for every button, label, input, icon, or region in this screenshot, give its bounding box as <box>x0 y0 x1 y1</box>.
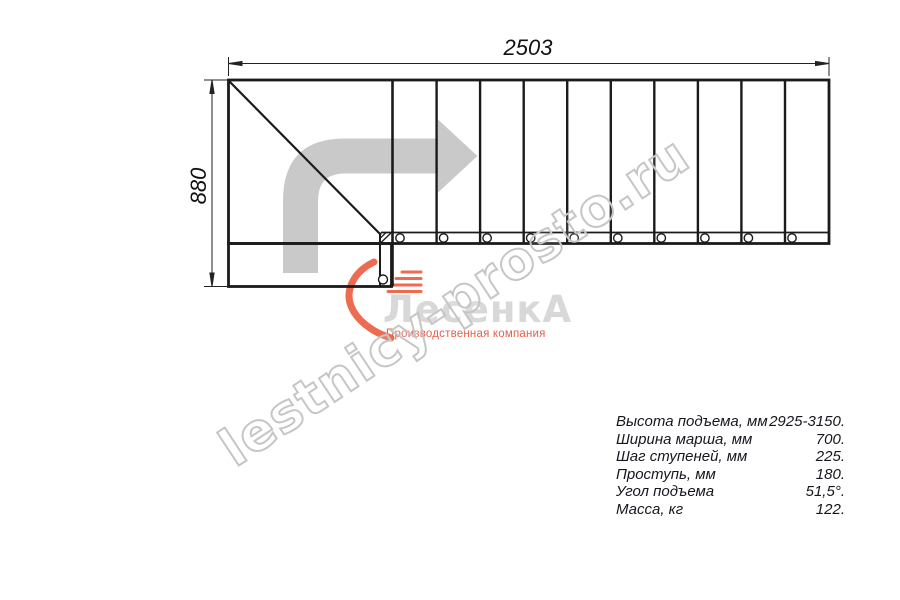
spec-row-tread: Проступь, мм 180. <box>616 466 845 484</box>
spec-row-height: Высота подъема, мм 2925-3150. <box>616 413 845 431</box>
spec-label: Шаг ступеней, мм <box>616 448 747 466</box>
spec-row-step-pitch: Шаг ступеней, мм 225. <box>616 448 845 466</box>
spec-label: Проступь, мм <box>616 466 716 484</box>
spec-label: Угол подъема <box>616 483 714 501</box>
spec-value: 51,5°. <box>806 483 845 501</box>
dimension-height-label: 880 <box>187 158 211 214</box>
spec-table: Высота подъема, мм 2925-3150. Ширина мар… <box>616 413 845 519</box>
spec-label: Ширина марша, мм <box>616 431 752 449</box>
spec-value: 2925-3150. <box>769 413 845 431</box>
spec-value: 180. <box>816 466 845 484</box>
spec-row-mass: Масса, кг 122. <box>616 501 845 519</box>
spec-value: 122. <box>816 501 845 519</box>
stair-drawing-page: 2503 880 ЛесенкА Производственная компан… <box>0 0 900 600</box>
spec-value: 700. <box>816 431 845 449</box>
spec-row-march-width: Ширина марша, мм 700. <box>616 431 845 449</box>
dimension-width-label: 2503 <box>478 35 578 61</box>
spec-value: 225. <box>816 448 845 466</box>
spec-label: Масса, кг <box>616 501 683 519</box>
spec-label: Высота подъема, мм <box>616 413 768 431</box>
spec-row-angle: Угол подъема 51,5°. <box>616 483 845 501</box>
